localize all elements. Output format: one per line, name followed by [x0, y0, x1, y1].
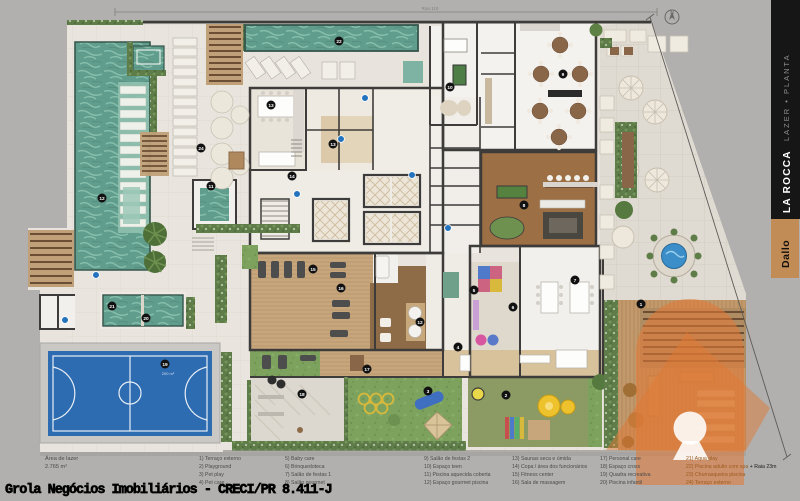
svg-text:22) Piscina adulto com spa + R: 22) Piscina adulto com spa + Raia 23m	[686, 464, 776, 470]
svg-text:24) Terraço externo: 24) Terraço externo	[686, 480, 731, 486]
svg-text:18) Espaço cross: 18) Espaço cross	[600, 464, 640, 470]
svg-text:10: 10	[447, 85, 453, 91]
svg-text:24: 24	[198, 146, 204, 152]
svg-text:8: 8	[523, 203, 526, 209]
svg-text:10) Espaço teen: 10) Espaço teen	[424, 464, 462, 470]
svg-text:N: N	[670, 10, 674, 16]
svg-text:5) Baby care: 5) Baby care	[285, 456, 315, 462]
svg-text:Dallo: Dallo	[780, 240, 792, 268]
svg-text:200 m²: 200 m²	[162, 371, 175, 376]
svg-text:Rua 110: Rua 110	[422, 6, 439, 11]
svg-text:20) Piscina infantil: 20) Piscina infantil	[600, 480, 642, 486]
svg-text:21) Aqua play: 21) Aqua play	[686, 456, 718, 462]
svg-text:21: 21	[109, 304, 115, 310]
svg-text:22: 22	[336, 39, 342, 45]
svg-text:23) Churrasqueira piscina: 23) Churrasqueira piscina	[686, 472, 746, 478]
svg-text:12: 12	[417, 320, 423, 326]
svg-text:15: 15	[310, 267, 316, 273]
svg-text:6: 6	[512, 305, 515, 311]
svg-text:9) Salão de festas 2: 9) Salão de festas 2	[424, 456, 470, 462]
svg-text:16: 16	[338, 286, 344, 292]
svg-text:12) Espaço gourmet piscina: 12) Espaço gourmet piscina	[424, 480, 488, 486]
svg-text:LAZER • PLANTA: LAZER • PLANTA	[782, 53, 791, 141]
svg-text:17: 17	[364, 367, 370, 373]
svg-text:7: 7	[574, 278, 577, 284]
svg-text:11) Piscina aquecida coberta: 11) Piscina aquecida coberta	[424, 472, 491, 478]
svg-text:17) Personal care: 17) Personal care	[600, 456, 641, 462]
svg-text:6) Brinquedoteca: 6) Brinquedoteca	[285, 464, 325, 470]
svg-text:14: 14	[289, 174, 295, 180]
svg-text:5: 5	[473, 288, 476, 294]
svg-text:3) Pet play: 3) Pet play	[199, 472, 224, 478]
svg-text:13: 13	[330, 142, 336, 148]
svg-text:13: 13	[268, 103, 274, 109]
svg-text:20: 20	[143, 316, 149, 322]
svg-text:7) Salão de festas 1: 7) Salão de festas 1	[285, 472, 331, 478]
svg-text:15) Fitness center: 15) Fitness center	[512, 472, 554, 478]
svg-text:3: 3	[427, 389, 430, 395]
svg-text:19) Quadra recreativa: 19) Quadra recreativa	[600, 472, 651, 478]
svg-text:13) Saunas seca e úmida: 13) Saunas seca e úmida	[512, 456, 571, 462]
svg-text:19: 19	[162, 362, 168, 368]
svg-text:2: 2	[505, 393, 508, 399]
svg-text:18: 18	[299, 392, 305, 398]
svg-text:LA ROCCA: LA ROCCA	[782, 150, 793, 213]
svg-text:12: 12	[99, 196, 105, 202]
svg-text:11: 11	[208, 184, 213, 190]
svg-text:2.765 m²: 2.765 m²	[45, 464, 67, 470]
svg-text:Grola Negócios Imobiliários -: Grola Negócios Imobiliários - CRECI/PR 8…	[5, 483, 332, 498]
svg-text:2) Playground: 2) Playground	[199, 464, 231, 470]
svg-text:Área de lazer: Área de lazer	[45, 455, 78, 462]
svg-text:1) Terraço externo: 1) Terraço externo	[199, 456, 241, 462]
svg-text:16) Sala de massagem: 16) Sala de massagem	[512, 480, 565, 486]
svg-text:1: 1	[640, 302, 643, 308]
svg-text:9: 9	[562, 72, 565, 78]
svg-text:14) Copa / área dos funcionári: 14) Copa / área dos funcionários	[512, 464, 588, 470]
svg-text:4: 4	[457, 345, 460, 351]
